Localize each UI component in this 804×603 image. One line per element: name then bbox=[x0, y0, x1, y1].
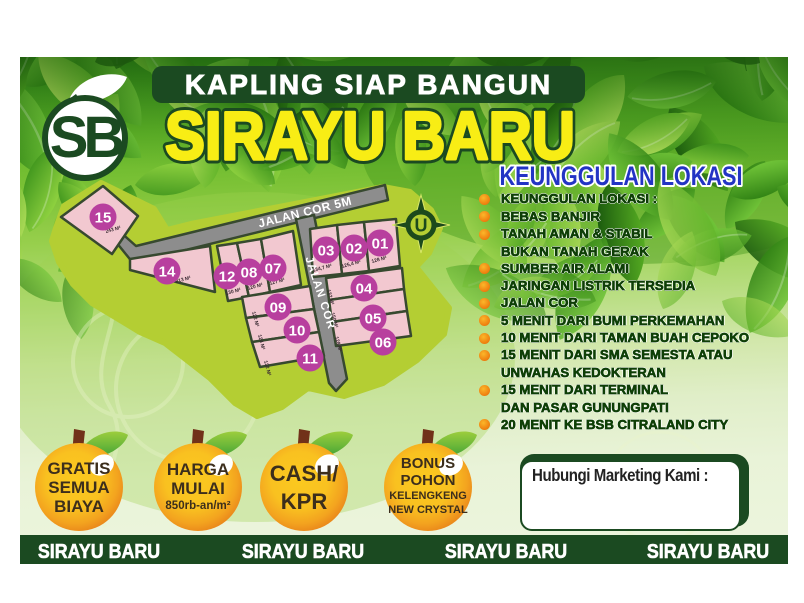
svg-text:SEMUA: SEMUA bbox=[48, 478, 109, 497]
svg-text:KELENGKENG: KELENGKENG bbox=[389, 490, 467, 502]
svg-text:POHON: POHON bbox=[400, 472, 455, 489]
svg-text:HARGA: HARGA bbox=[167, 460, 229, 479]
svg-text:NEW CRYSTAL: NEW CRYSTAL bbox=[388, 504, 468, 516]
svg-text:GRATIS: GRATIS bbox=[48, 459, 111, 478]
svg-text:CASH/: CASH/ bbox=[270, 461, 338, 486]
svg-text:KPR: KPR bbox=[281, 489, 328, 514]
svg-text:BIAYA: BIAYA bbox=[54, 497, 104, 516]
svg-text:850rb-an/m²: 850rb-an/m² bbox=[165, 500, 230, 512]
svg-text:BONUS: BONUS bbox=[401, 455, 455, 472]
svg-text:MULAI: MULAI bbox=[171, 479, 225, 498]
